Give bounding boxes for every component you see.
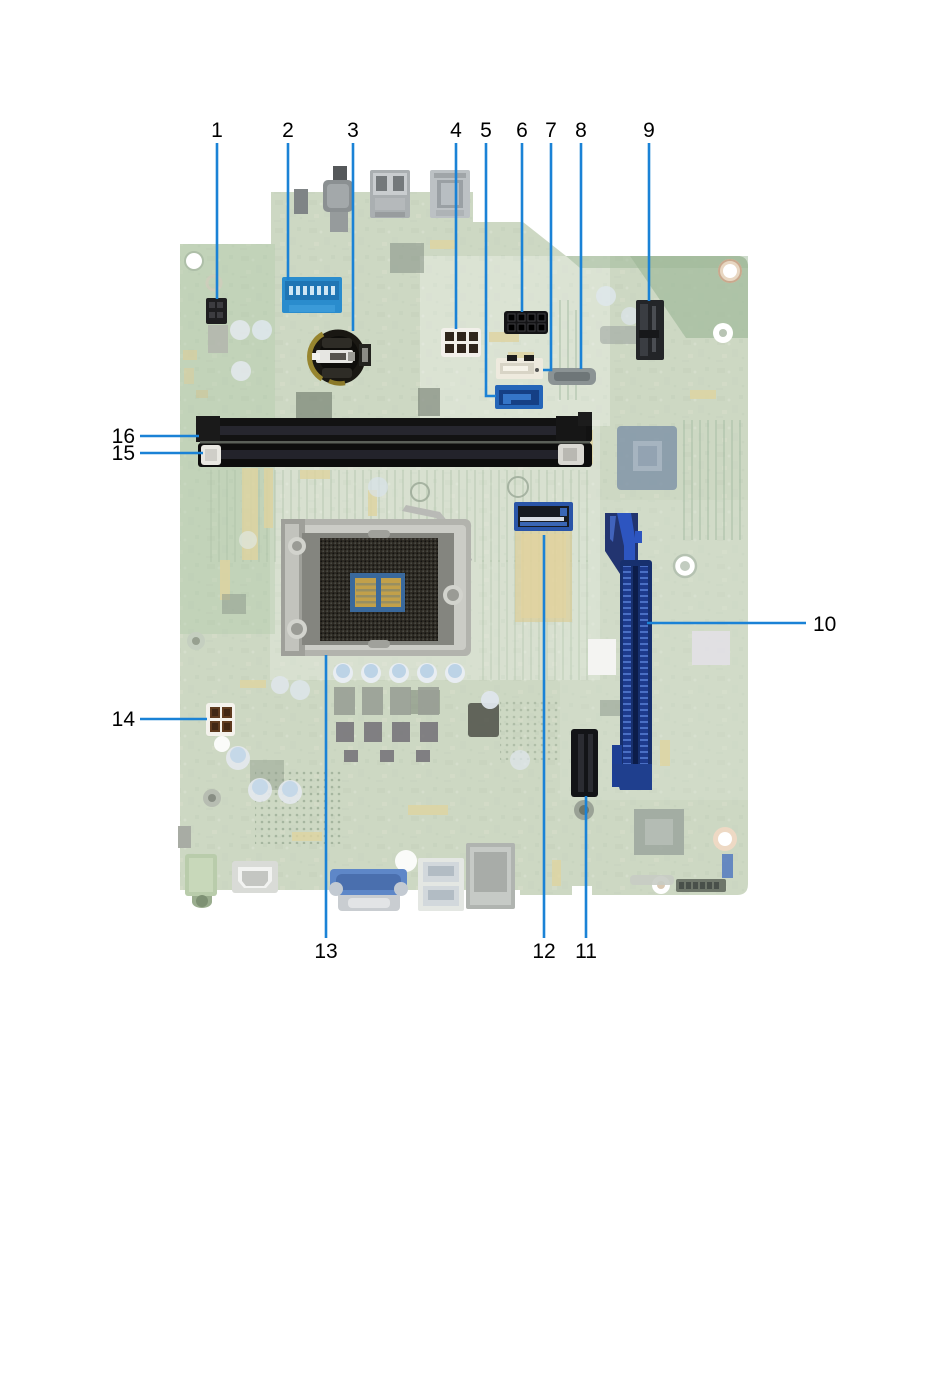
svg-text:6: 6 (516, 119, 528, 142)
svg-text:9: 9 (643, 119, 655, 142)
svg-text:5: 5 (480, 119, 492, 142)
svg-text:4: 4 (450, 119, 462, 142)
svg-text:8: 8 (575, 119, 587, 142)
svg-text:14: 14 (112, 708, 136, 731)
svg-text:1: 1 (211, 119, 223, 142)
svg-text:7: 7 (545, 119, 557, 142)
svg-text:13: 13 (314, 940, 337, 963)
svg-text:10: 10 (813, 613, 836, 636)
svg-text:2: 2 (282, 119, 294, 142)
svg-text:12: 12 (532, 940, 555, 963)
svg-text:3: 3 (347, 119, 359, 142)
svg-text:16: 16 (112, 425, 135, 448)
svg-text:11: 11 (575, 940, 597, 963)
